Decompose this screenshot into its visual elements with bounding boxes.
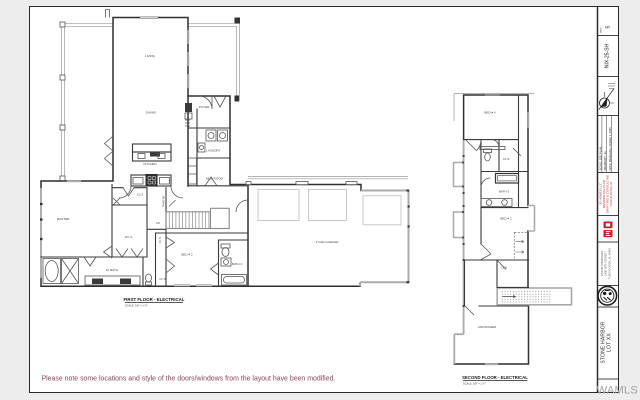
svg-text:UP: UP bbox=[156, 221, 160, 225]
svg-text:CL'S: CL'S bbox=[503, 157, 509, 161]
svg-text:DATE: Wednesday, October 1, 2: DATE: Wednesday, October 1, 2025 bbox=[608, 127, 612, 171]
svg-text:2 CAR GARAGE: 2 CAR GARAGE bbox=[316, 240, 339, 244]
svg-text:TUSCALOOSA, AL 35401: TUSCALOOSA, AL 35401 bbox=[607, 247, 611, 279]
svg-text:BED # 2: BED # 2 bbox=[181, 253, 193, 257]
svg-text:NIX-25-SH: NIX-25-SH bbox=[605, 44, 611, 69]
svg-text:M. BATH: M. BATH bbox=[106, 268, 118, 272]
svg-text:KITCHEN: KITCHEN bbox=[143, 162, 156, 166]
svg-text:WAMLS: WAMLS bbox=[597, 385, 639, 397]
svg-text:SCALE: 1/8" = 1'-0": SCALE: 1/8" = 1'-0" bbox=[463, 381, 486, 385]
svg-text:MASTER: MASTER bbox=[57, 217, 70, 221]
svg-text:UNFINISHED: UNFINISHED bbox=[478, 325, 497, 329]
svg-text:BATH 2: BATH 2 bbox=[232, 262, 243, 266]
svg-text:CL'S: CL'S bbox=[137, 192, 143, 196]
svg-text:CL'S: CL'S bbox=[159, 277, 165, 281]
svg-text:5: 5 bbox=[606, 25, 612, 28]
svg-text:BED # 3: BED # 3 bbox=[500, 217, 512, 221]
svg-text:MUD ROOM: MUD ROOM bbox=[206, 177, 223, 181]
svg-text:DRAWN BY: JG: DRAWN BY: JG bbox=[603, 151, 607, 170]
svg-text:PANTRY: PANTRY bbox=[162, 195, 166, 207]
svg-text:LOT XX: LOT XX bbox=[607, 333, 613, 352]
svg-text:DINING: DINING bbox=[146, 111, 157, 115]
svg-text:TUSCALOOSA, AL: TUSCALOOSA, AL bbox=[609, 181, 613, 207]
svg-text:BED # 4: BED # 4 bbox=[484, 111, 496, 115]
svg-text:FIRST FLOOR - ELECTRICAL: FIRST FLOOR - ELECTRICAL bbox=[124, 297, 185, 302]
svg-text:VISION COMPANIES: VISION COMPANIES bbox=[600, 250, 604, 276]
svg-text:CL'S: CL'S bbox=[501, 266, 507, 270]
svg-text:PAGE: PAGE bbox=[600, 27, 603, 33]
svg-text:FOYER: FOYER bbox=[199, 105, 210, 109]
svg-text:SECOND FLOOR - ELECTRICAL: SECOND FLOOR - ELECTRICAL bbox=[462, 375, 528, 380]
svg-text:LIVING: LIVING bbox=[145, 54, 156, 58]
svg-text:SCALE: 1/8" = 1'-0": SCALE: 1/8" = 1'-0" bbox=[125, 304, 148, 308]
svg-text:SCALE: SEE PLAN: SCALE: SEE PLAN bbox=[598, 147, 602, 171]
svg-text:W.I.C.: W.I.C. bbox=[125, 235, 133, 239]
svg-text:1400 26TH STREET: 1400 26TH STREET bbox=[604, 251, 608, 276]
svg-text:BATH 3: BATH 3 bbox=[499, 190, 510, 194]
svg-text:CL'S: CL'S bbox=[158, 237, 162, 243]
svg-text:Please note some locations and: Please note some locations and style of … bbox=[42, 376, 336, 383]
svg-text:LAUNDRY: LAUNDRY bbox=[206, 149, 220, 153]
